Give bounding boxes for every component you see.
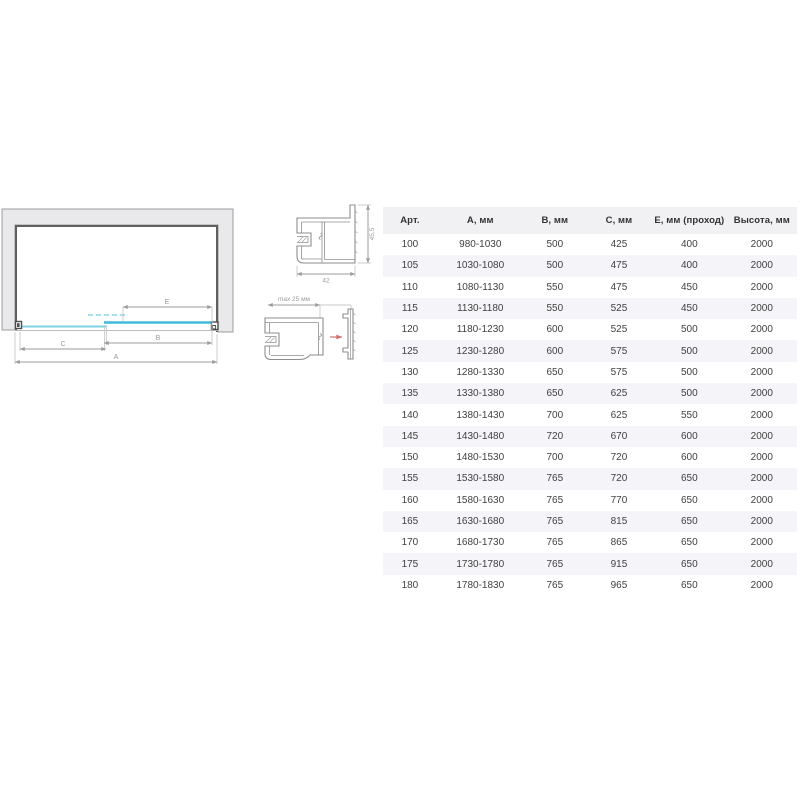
table-cell: 2000 — [727, 426, 797, 447]
table-cell: 550 — [524, 298, 586, 319]
table-cell: 650 — [524, 383, 586, 404]
dim-label-a: A — [114, 354, 119, 361]
table-cell: 500 — [652, 319, 727, 340]
table-cell: 500 — [524, 255, 586, 276]
table-cell: 720 — [586, 468, 652, 489]
col-header-c: С, мм — [586, 207, 652, 234]
table-cell: 135 — [383, 383, 437, 404]
table-cell: 115 — [383, 298, 437, 319]
table-cell: 2000 — [727, 277, 797, 298]
table-cell: 1780-1830 — [437, 575, 524, 596]
table-cell: 575 — [586, 340, 652, 361]
table-cell: 1580-1630 — [437, 490, 524, 511]
profile-top-outline — [297, 205, 355, 263]
table-cell: 2000 — [727, 468, 797, 489]
table-cell: 650 — [652, 553, 727, 574]
profile-cross-section-top: 42 45,5 — [283, 198, 378, 286]
table-cell: 865 — [586, 532, 652, 553]
table-cell: 1030-1080 — [437, 255, 524, 276]
table-cell: 140 — [383, 404, 437, 425]
table-row: 1151130-11805505254502000 — [383, 298, 797, 319]
table-cell: 650 — [652, 532, 727, 553]
table-cell: 770 — [586, 490, 652, 511]
table-row: 1201180-12306005255002000 — [383, 319, 797, 340]
table-cell: 450 — [652, 298, 727, 319]
table-cell: 650 — [652, 575, 727, 596]
table-cell: 1180-1230 — [437, 319, 524, 340]
table-cell: 625 — [586, 383, 652, 404]
table-cell: 2000 — [727, 319, 797, 340]
spec-table-header: Арт. А, мм В, мм С, мм Е, мм (проход) Вы… — [383, 207, 797, 234]
table-cell: 525 — [586, 319, 652, 340]
table-cell: 500 — [652, 383, 727, 404]
table-cell: 1080-1130 — [437, 277, 524, 298]
table-cell: 2000 — [727, 362, 797, 383]
table-cell: 765 — [524, 490, 586, 511]
table-cell: 650 — [652, 490, 727, 511]
table-cell: 425 — [586, 234, 652, 255]
table-cell: 155 — [383, 468, 437, 489]
table-cell: 765 — [524, 532, 586, 553]
profile-bottom-outline — [265, 318, 323, 360]
table-cell: 2000 — [727, 447, 797, 468]
table-cell: 2000 — [727, 383, 797, 404]
table-row: 1801780-18307659656502000 — [383, 575, 797, 596]
table-cell: 765 — [524, 511, 586, 532]
table-cell: 160 — [383, 490, 437, 511]
door-top-view-diagram: E B C A — [0, 195, 240, 375]
table-row: 1601580-16307657706502000 — [383, 490, 797, 511]
table-cell: 650 — [524, 362, 586, 383]
table-cell: 130 — [383, 362, 437, 383]
table-cell: 2000 — [727, 298, 797, 319]
table-cell: 170 — [383, 532, 437, 553]
table-cell: 550 — [524, 277, 586, 298]
col-header-a: А, мм — [437, 207, 524, 234]
table-row: 1401380-14307006255502000 — [383, 404, 797, 425]
table-row: 1251230-12806005755002000 — [383, 340, 797, 361]
table-cell: 525 — [586, 298, 652, 319]
table-cell: 1380-1430 — [437, 404, 524, 425]
table-cell: 1730-1780 — [437, 553, 524, 574]
table-cell: 915 — [586, 553, 652, 574]
table-cell: 150 — [383, 447, 437, 468]
spec-sheet-page: E B C A — [0, 0, 800, 800]
table-cell: 2000 — [727, 490, 797, 511]
table-cell: 2000 — [727, 532, 797, 553]
table-row: 1051030-10805004754002000 — [383, 255, 797, 276]
table-cell: 2000 — [727, 234, 797, 255]
table-cell: 400 — [652, 255, 727, 276]
table-cell: 1630-1680 — [437, 511, 524, 532]
dim-label-max-25: max 25 мм — [278, 296, 311, 303]
table-cell: 1430-1480 — [437, 426, 524, 447]
table-cell: 120 — [383, 319, 437, 340]
table-cell: 1130-1180 — [437, 298, 524, 319]
profile-cross-section-bottom: max 25 мм — [256, 292, 368, 366]
table-cell: 765 — [524, 575, 586, 596]
table-cell: 670 — [586, 426, 652, 447]
table-cell: 600 — [652, 447, 727, 468]
table-row: 1651630-16807658156502000 — [383, 511, 797, 532]
table-cell: 600 — [524, 340, 586, 361]
table-cell: 500 — [524, 234, 586, 255]
table-row: 1701680-17307658656502000 — [383, 532, 797, 553]
table-cell: 100 — [383, 234, 437, 255]
table-cell: 165 — [383, 511, 437, 532]
table-cell: 720 — [586, 447, 652, 468]
col-header-e: Е, мм (проход) — [652, 207, 727, 234]
table-cell: 110 — [383, 277, 437, 298]
table-cell: 625 — [586, 404, 652, 425]
col-header-height: Высота, мм — [727, 207, 797, 234]
table-row: 1551530-15807657206502000 — [383, 468, 797, 489]
table-cell: 1330-1380 — [437, 383, 524, 404]
table-cell: 2000 — [727, 553, 797, 574]
table-cell: 180 — [383, 575, 437, 596]
table-row: 1501480-15307007206002000 — [383, 447, 797, 468]
wall-profile-outline — [343, 309, 353, 359]
table-cell: 765 — [524, 553, 586, 574]
frame-inner-border — [16, 226, 217, 332]
table-row: 1751730-17807659156502000 — [383, 553, 797, 574]
table-cell: 175 — [383, 553, 437, 574]
table-cell: 700 — [524, 447, 586, 468]
dim-label-b: B — [156, 335, 161, 342]
spec-table-body: 100980-103050042540020001051030-10805004… — [383, 234, 797, 596]
table-cell: 700 — [524, 404, 586, 425]
table-cell: 2000 — [727, 340, 797, 361]
right-wall-bracket — [212, 322, 219, 330]
table-cell: 1680-1730 — [437, 532, 524, 553]
table-cell: 1480-1530 — [437, 447, 524, 468]
table-cell: 450 — [652, 277, 727, 298]
table-cell: 720 — [524, 426, 586, 447]
col-header-b: В, мм — [524, 207, 586, 234]
left-wall-bracket — [16, 322, 22, 329]
dim-label-42: 42 — [322, 278, 330, 285]
spec-table: Арт. А, мм В, мм С, мм Е, мм (проход) Вы… — [383, 207, 797, 596]
table-row: 1301280-13306505755002000 — [383, 362, 797, 383]
table-cell: 2000 — [727, 511, 797, 532]
wall-shape — [2, 209, 233, 332]
dim-label-c: C — [60, 341, 65, 348]
table-cell: 980-1030 — [437, 234, 524, 255]
table-cell: 600 — [652, 426, 727, 447]
dim-label-45-5: 45,5 — [369, 227, 376, 240]
table-cell: 2000 — [727, 404, 797, 425]
profile-bottom-hatching — [266, 337, 275, 343]
table-cell: 550 — [652, 404, 727, 425]
table-cell: 1530-1580 — [437, 468, 524, 489]
table-cell: 600 — [524, 319, 586, 340]
table-cell: 125 — [383, 340, 437, 361]
table-row: 1101080-11305504754502000 — [383, 277, 797, 298]
table-row: 1451430-14807206706002000 — [383, 426, 797, 447]
table-cell: 815 — [586, 511, 652, 532]
table-row: 1351330-13806506255002000 — [383, 383, 797, 404]
table-cell: 500 — [652, 362, 727, 383]
table-cell: 145 — [383, 426, 437, 447]
table-cell: 765 — [524, 468, 586, 489]
table-cell: 105 — [383, 255, 437, 276]
col-header-art: Арт. — [383, 207, 437, 234]
profile-top-hatching — [298, 237, 307, 243]
table-cell: 2000 — [727, 255, 797, 276]
table-cell: 400 — [652, 234, 727, 255]
table-cell: 1280-1330 — [437, 362, 524, 383]
table-row: 100980-10305004254002000 — [383, 234, 797, 255]
table-cell: 575 — [586, 362, 652, 383]
table-cell: 475 — [586, 277, 652, 298]
dim-label-e: E — [165, 299, 170, 306]
table-cell: 965 — [586, 575, 652, 596]
table-cell: 500 — [652, 340, 727, 361]
table-cell: 650 — [652, 468, 727, 489]
table-cell: 650 — [652, 511, 727, 532]
table-cell: 1230-1280 — [437, 340, 524, 361]
table-cell: 475 — [586, 255, 652, 276]
table-cell: 2000 — [727, 575, 797, 596]
